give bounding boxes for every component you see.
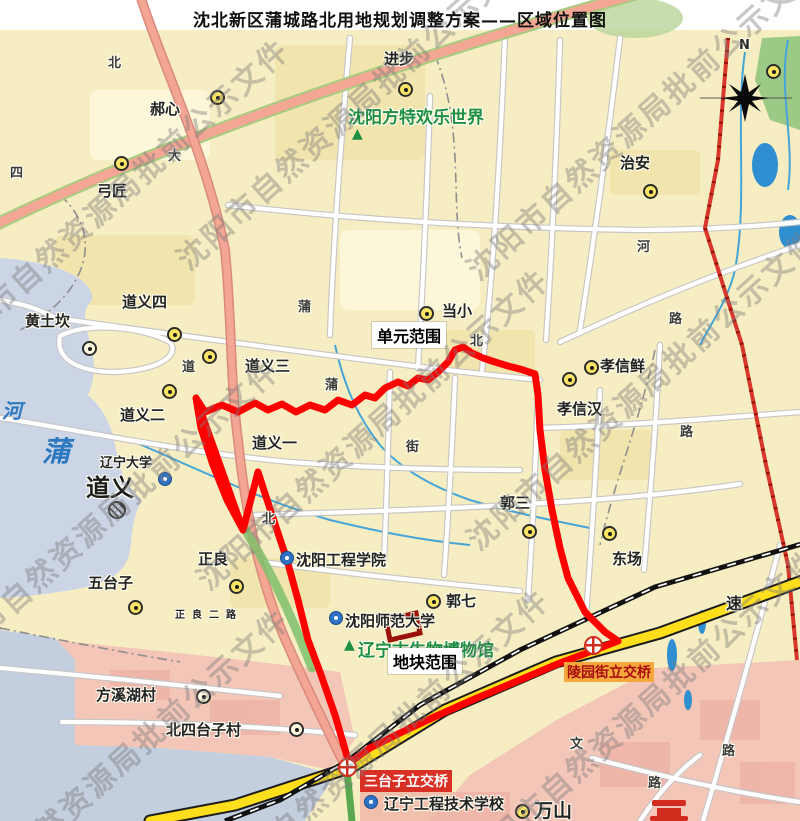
road-label-wen: 文 [570, 733, 583, 752]
village-icon-zhian [643, 184, 658, 199]
village-icon-fangxihucun [196, 689, 211, 704]
road-label-bei2: 北 [470, 330, 483, 349]
village-icon-beisitaizicun [289, 722, 304, 737]
label-daoyi1: 道义一 [252, 432, 297, 453]
village-icon-guoqi [426, 594, 441, 609]
label-zhian: 治安 [620, 152, 650, 173]
road-label-su-expressway: 速 [726, 590, 742, 614]
label-he-river: 河 [2, 395, 22, 424]
santaizi-interchange-label: 三台子立交桥 [360, 770, 452, 792]
label-fangxihucun: 方溪湖村 [96, 684, 156, 705]
label-guoqi: 郭七 [446, 590, 476, 611]
label-dongchang: 东场 [612, 548, 642, 569]
village-icon-daoyi2 [162, 384, 177, 399]
village-icon-haoxin [210, 90, 225, 105]
label-shenyang-normal-university: 沈阳师范大学 [345, 610, 435, 631]
road-label-zhengliang-2nd-rd: 正良二路 [175, 606, 243, 621]
village-icon-jinbu [398, 82, 413, 97]
tree-icon-fante: ▲ [352, 126, 363, 142]
junction-icon-daoyi4 [167, 327, 182, 342]
unit-scope-callout: 单元范围 [372, 322, 446, 348]
road-label-da: 大 [168, 145, 181, 164]
junction-icon-dao [202, 349, 217, 364]
road-label-lu1: 路 [680, 421, 693, 440]
label-daoyi3: 道义三 [245, 355, 290, 376]
road-label-lu2: 路 [669, 308, 682, 327]
label-wanshan: 万山 [534, 796, 572, 821]
interchange-icon-santaizi [338, 758, 357, 777]
village-icon-northeast [766, 64, 781, 79]
label-gongjiang: 弓匠 [97, 180, 127, 201]
road-label-jie: 街 [406, 436, 419, 455]
label-huangtukan: 黄土坎 [25, 310, 70, 331]
compass-north-label: N [739, 38, 750, 53]
label-pu-river: 蒲 [42, 430, 70, 470]
village-icon-wanshan [515, 804, 530, 819]
village-icon-zhengliang [229, 579, 244, 594]
road-label-bei3: 北 [262, 508, 275, 527]
road-label-dao: 道 [182, 356, 195, 375]
interchange-icon-lingyuan [584, 636, 603, 655]
university-icon-liaogongxiao [364, 795, 378, 809]
village-icon-xiaoxin-a [562, 372, 577, 387]
plot-scope-callout: 地块范围 [388, 648, 462, 674]
tree-icon-bowuguan: ▲ [344, 637, 355, 653]
label-daoyi4: 道义四 [122, 291, 167, 312]
village-icon-guosan [522, 524, 537, 539]
label-daoyi2: 道义二 [120, 404, 165, 425]
road-label-he: 河 [637, 236, 650, 255]
region-location-map: { "title": "沈北新区蒲城路北用地规划调整方案——区域位置图", "w… [0, 0, 800, 821]
label-liaoning-tech-school: 辽宁工程技术学校 [384, 793, 504, 814]
label-xiaoxinxian: 孝信鲜 [600, 355, 645, 376]
label-beisitaizicun: 北四台子村 [166, 719, 241, 740]
label-dangxiao: 当小 [442, 300, 472, 321]
road-label-pu1: 蒲 [298, 296, 311, 315]
label-shenyang-engineering-institute: 沈阳工程学院 [296, 549, 386, 570]
village-icon-dangxiao [419, 306, 434, 321]
label-zhengliang: 正良 [198, 548, 228, 569]
town-icon-daoyi [108, 501, 126, 519]
road-label-lu4: 路 [648, 772, 661, 791]
road-label-si: 四 [10, 162, 23, 181]
village-icon-huangtukan [82, 341, 97, 356]
lingyuan-interchange-label: 陵园街立交桥 [564, 662, 654, 682]
label-haoxin: 郝心 [150, 98, 180, 119]
road-label-lu3: 路 [722, 740, 735, 759]
road-label-bei: 北 [108, 52, 121, 71]
village-icon-xiaoxin-b [584, 360, 599, 375]
university-icon-liaoda [158, 472, 172, 486]
village-icon-dongchang [602, 526, 617, 541]
label-liaoning-university: 辽宁大学 [100, 452, 152, 471]
label-daoyi: 道义 [86, 468, 134, 503]
university-icon-gongcheng [280, 551, 294, 565]
label-wutaizi: 五台子 [88, 572, 133, 593]
label-jinbu: 进步 [384, 48, 414, 69]
road-label-pu2: 蒲 [325, 374, 338, 393]
label-xiaoxinhan: 孝信汉 [557, 398, 602, 419]
page-title: 沈北新区蒲城路北用地规划调整方案——区域位置图 [0, 6, 800, 31]
village-icon-gongjiang [114, 156, 129, 171]
label-guosan: 郭三 [500, 492, 530, 513]
village-icon-wutaizi [128, 600, 143, 615]
university-icon-shidafu [329, 611, 343, 625]
label-fante-park: 沈阳方特欢乐世界 [348, 103, 484, 128]
